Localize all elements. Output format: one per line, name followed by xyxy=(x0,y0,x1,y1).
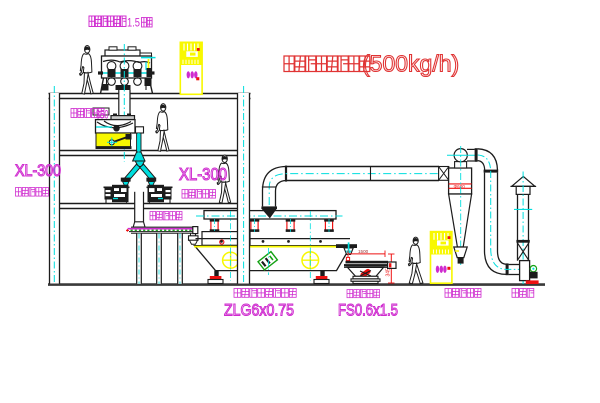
svg-text:1500: 1500 xyxy=(358,249,369,254)
svg-text:FS0.6x1.5: FS0.6x1.5 xyxy=(338,301,398,320)
svg-text:XL-300: XL-300 xyxy=(15,161,61,180)
svg-text:Φ600: Φ600 xyxy=(454,184,466,189)
svg-text:ZLG6x0.75: ZLG6x0.75 xyxy=(224,301,294,320)
svg-text:1.5: 1.5 xyxy=(127,16,140,30)
svg-text:(500kg/h): (500kg/h) xyxy=(362,51,459,77)
svg-text:345: 345 xyxy=(386,268,392,277)
svg-text:350: 350 xyxy=(96,110,109,122)
svg-text:XL-300: XL-300 xyxy=(179,164,227,184)
